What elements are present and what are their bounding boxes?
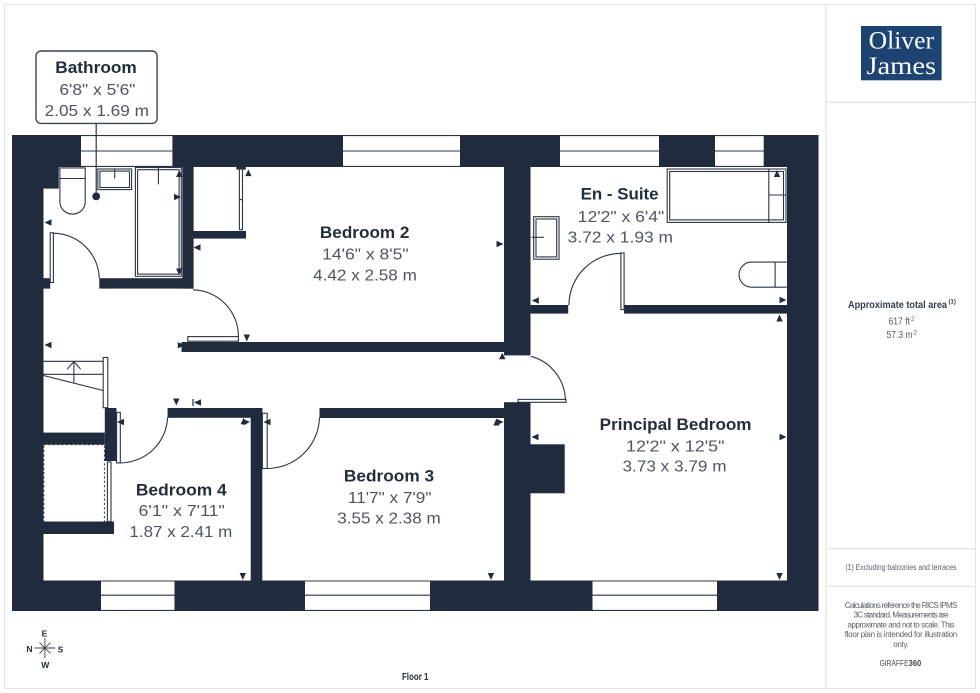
svg-text:(1) Excluding balconies and te: (1) Excluding balconies and terraces (845, 563, 956, 572)
svg-text:3C standard. Measurements are: 3C standard. Measurements are (854, 611, 950, 620)
svg-text:Oliver: Oliver (869, 28, 935, 55)
svg-text:3.55 x 2.38 m: 3.55 x 2.38 m (337, 511, 441, 528)
svg-text:Calculations reference the RIC: Calculations reference the RICS IPMS (845, 601, 958, 610)
svg-text:57.3 m: 57.3 m (887, 330, 913, 341)
svg-text:4.42 x 2.58 m: 4.42 x 2.58 m (313, 268, 417, 285)
svg-text:E: E (42, 628, 48, 638)
svg-text:approximate and not to scale.: approximate and not to scale. This (848, 620, 955, 629)
svg-text:James: James (866, 53, 936, 80)
svg-text:2: 2 (914, 331, 918, 337)
svg-text:Bathroom: Bathroom (55, 58, 137, 77)
svg-text:GIRAFFE360: GIRAFFE360 (880, 659, 922, 668)
svg-text:3.73 x 3.79 m: 3.73 x 3.79 m (623, 459, 727, 476)
svg-text:Bedroom 4: Bedroom 4 (136, 481, 227, 500)
svg-text:W: W (41, 660, 50, 670)
svg-text:(1): (1) (949, 300, 956, 306)
svg-text:2: 2 (911, 317, 915, 323)
svg-text:Floor 1: Floor 1 (402, 672, 429, 683)
svg-text:6'1" x 7'11": 6'1" x 7'11" (139, 503, 225, 520)
svg-text:En - Suite: En - Suite (581, 184, 659, 203)
svg-text:6'8" x 5'6": 6'8" x 5'6" (59, 82, 135, 99)
svg-text:14'6" x 8'5": 14'6" x 8'5" (322, 247, 408, 264)
svg-text:Principal Bedroom: Principal Bedroom (600, 415, 752, 434)
svg-text:S: S (58, 644, 64, 654)
svg-text:11'7" x 7'9": 11'7" x 7'9" (348, 490, 432, 507)
svg-text:12'2" x 6'4": 12'2" x 6'4" (578, 209, 665, 226)
svg-text:Bedroom 3: Bedroom 3 (344, 467, 434, 486)
svg-text:3.72 x 1.93 m: 3.72 x 1.93 m (568, 230, 673, 247)
svg-text:floor plan is intended for ill: floor plan is intended for illustration (845, 630, 958, 639)
svg-text:12'2" x 12'5": 12'2" x 12'5" (626, 439, 725, 456)
svg-text:617 ft: 617 ft (889, 316, 911, 327)
svg-text:only.: only. (893, 640, 909, 649)
svg-text:N: N (26, 644, 32, 654)
svg-text:Approximate total area: Approximate total area (848, 300, 947, 311)
svg-text:1.87 x 2.41 m: 1.87 x 2.41 m (129, 524, 232, 541)
svg-text:2.05 x 1.69 m: 2.05 x 1.69 m (45, 103, 149, 120)
svg-text:Bedroom 2: Bedroom 2 (320, 223, 410, 242)
